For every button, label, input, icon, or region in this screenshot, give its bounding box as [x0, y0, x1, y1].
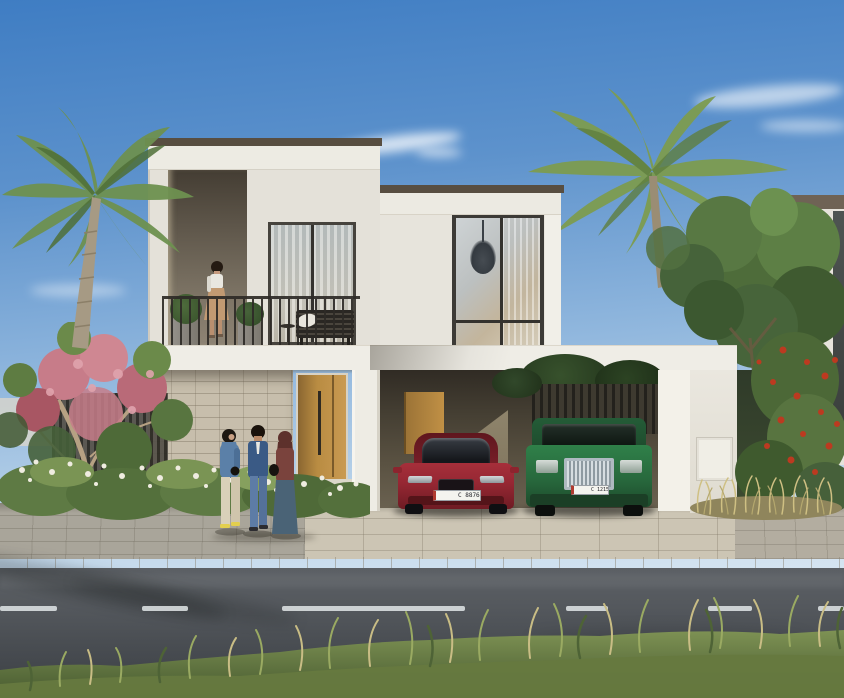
side-mirror [510, 467, 519, 473]
chandelier-stem [482, 220, 484, 242]
green-suv [526, 418, 652, 517]
suv-license-plate: C 12152 [571, 485, 609, 495]
headlight [620, 460, 642, 473]
wheel [405, 504, 423, 514]
upper-window-right [452, 215, 544, 345]
palm-tree-left [0, 103, 205, 365]
wheel [623, 505, 643, 516]
side-mirror [393, 467, 402, 473]
sheer-curtain [502, 218, 540, 345]
dry-grass [688, 460, 844, 520]
person-woman-hijab-denim [220, 429, 240, 528]
headlight [536, 460, 558, 473]
wheel [489, 504, 507, 514]
foreground-grass [0, 590, 844, 698]
people-group [208, 420, 308, 550]
headlight [480, 476, 505, 483]
wall-pilaster [545, 215, 561, 345]
chandelier [470, 240, 496, 274]
person-woman-hijab-maroon [269, 431, 298, 534]
window-transom [456, 320, 540, 323]
wheel [535, 505, 555, 516]
white-flower-bushes [0, 428, 370, 524]
sedan-license-plate: C 88764 [433, 490, 481, 501]
suv-plate-number: C 12152 [591, 486, 609, 494]
sedan-plate-number: C 88764 [458, 491, 481, 500]
backyard-foliage [492, 368, 542, 398]
roof-fascia [355, 193, 561, 215]
window-mullion [500, 218, 503, 348]
villa-exterior-rendering: C 88764 C 12152 [0, 0, 844, 698]
sedan-windshield [422, 438, 490, 466]
red-sedan [398, 433, 514, 517]
headlight [408, 476, 433, 483]
cloud [416, 148, 462, 157]
roof-coping [352, 185, 564, 193]
fascia-shadow [370, 345, 510, 370]
person-man-blazer [248, 425, 268, 531]
carport-pillar-inner-face [658, 370, 690, 511]
